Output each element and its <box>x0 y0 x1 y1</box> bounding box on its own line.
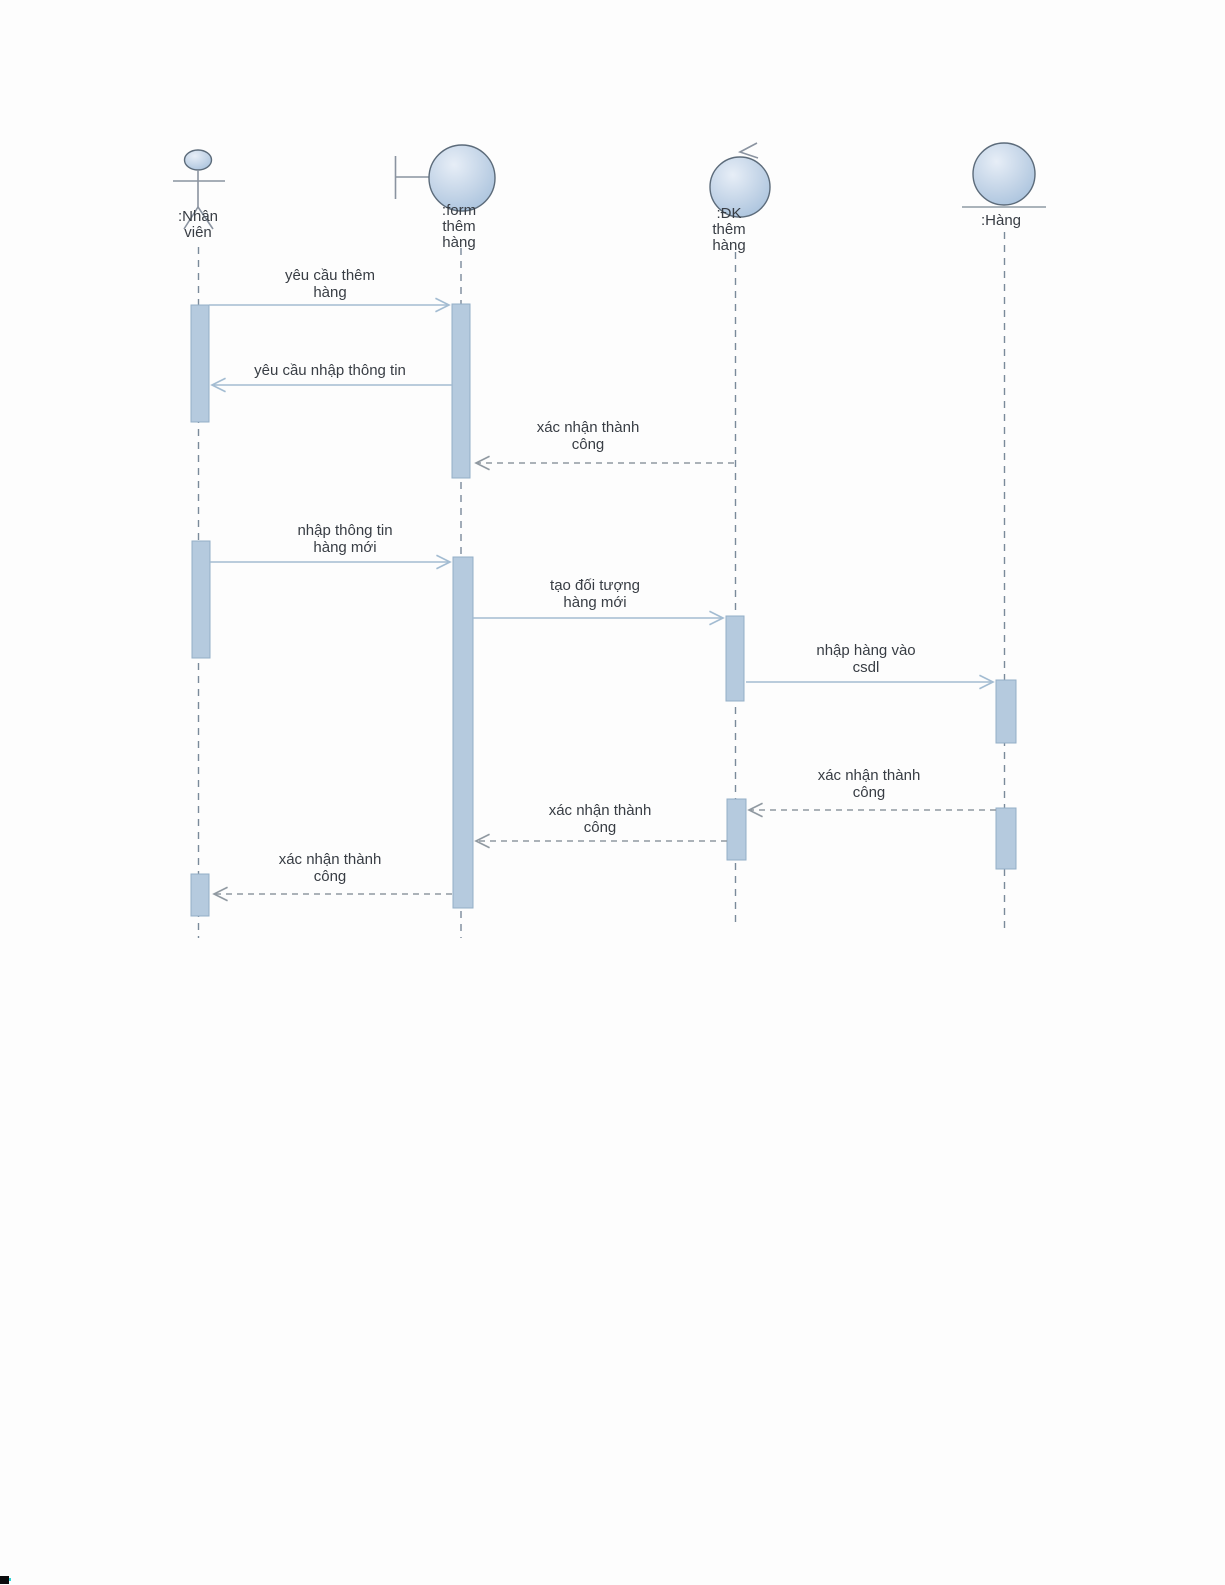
message-label-6: nhập hàng vào csdl <box>816 643 915 676</box>
scan-artifact <box>0 1576 9 1584</box>
sequence-diagram-page: :Nhân viên :form thêm hàng :ĐK thêm hàng… <box>0 0 1225 1585</box>
activation-nhan-vien-3 <box>191 874 209 916</box>
activation-hang-1 <box>996 680 1016 743</box>
message-label-8: xác nhận thành công <box>549 803 652 836</box>
lifeline-label-dk-them-hang: :ĐK thêm hàng <box>712 206 745 254</box>
activation-dk-1 <box>726 616 744 701</box>
entity-icon <box>962 143 1046 207</box>
activation-hang-2 <box>996 808 1016 869</box>
activation-form-1 <box>452 304 470 478</box>
lifeline-label-form-them-hang: :form thêm hàng <box>442 203 476 251</box>
lifeline-label-hang: :Hàng <box>981 213 1021 229</box>
message-label-1: yêu cầu thêm hàng <box>285 268 375 301</box>
lifeline-label-nhan-vien: :Nhân viên <box>178 209 218 241</box>
activation-nhan-vien-2 <box>192 541 210 658</box>
message-label-5: tạo đối tượng hàng mới <box>550 578 640 611</box>
message-label-4: nhập thông tin hàng mới <box>297 523 392 556</box>
message-label-7: xác nhận thành công <box>818 768 921 801</box>
activation-nhan-vien-1 <box>191 305 209 422</box>
message-label-2: yêu cầu nhập thông tin <box>254 363 406 380</box>
message-label-3: xác nhận thành công <box>537 420 640 453</box>
activation-form-2 <box>453 557 473 908</box>
message-label-9: xác nhận thành công <box>279 852 382 885</box>
activation-dk-2 <box>727 799 746 860</box>
